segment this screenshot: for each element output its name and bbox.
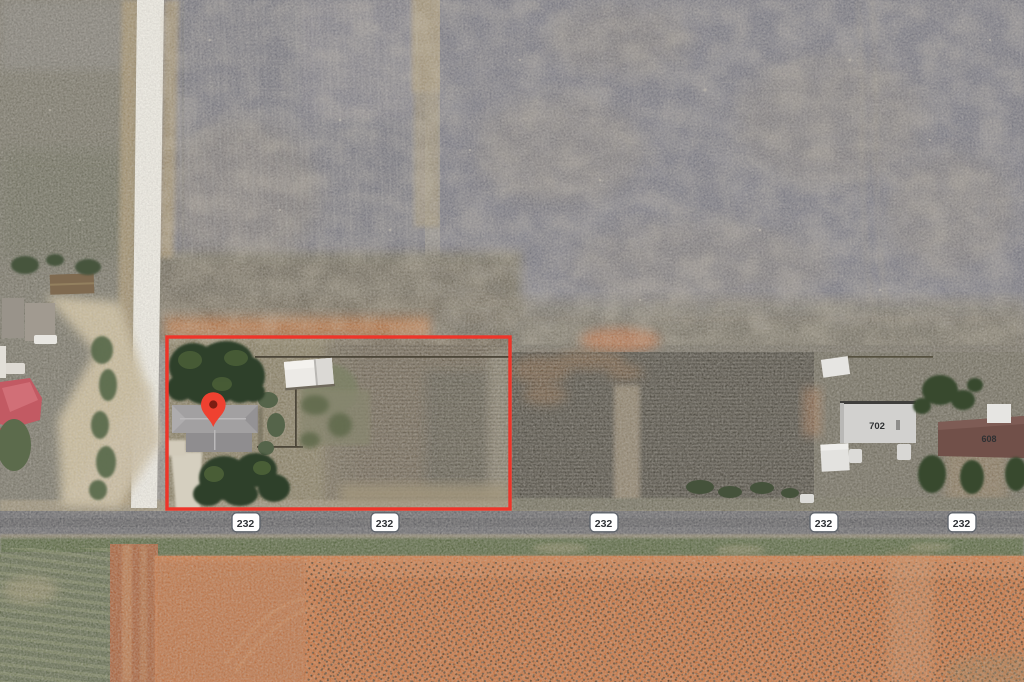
svg-text:702: 702 bbox=[869, 421, 885, 432]
svg-text:232: 232 bbox=[953, 518, 971, 530]
svg-text:232: 232 bbox=[815, 518, 833, 530]
svg-text:232: 232 bbox=[376, 518, 394, 530]
svg-text:232: 232 bbox=[237, 518, 255, 530]
svg-text:232: 232 bbox=[595, 518, 613, 530]
svg-text:608: 608 bbox=[981, 434, 996, 444]
